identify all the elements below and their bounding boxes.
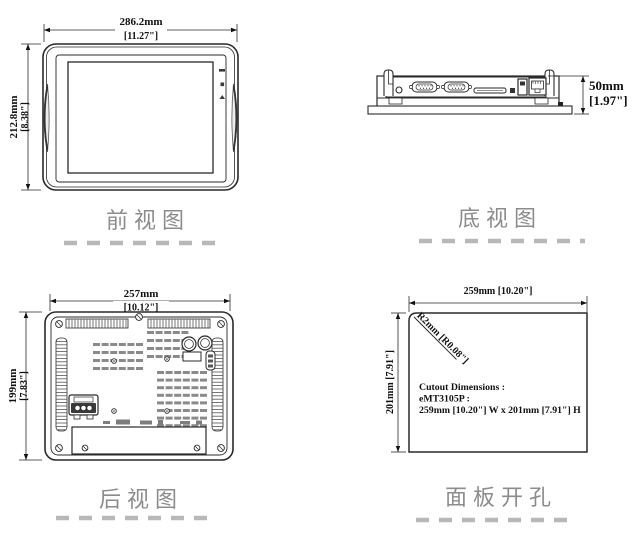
cutout-height-text: 201mm [7.91"] xyxy=(385,350,396,414)
power-terminal-icon xyxy=(69,395,98,419)
left-mount-clip-icon xyxy=(384,70,393,96)
ethernet-port-icon xyxy=(529,78,546,95)
drawing-canvas: 286.2mm [11.27"] 212.8mm [8.38"] 前视图 xyxy=(0,0,640,550)
cutout-height-dimension: 201mm [7.91"] xyxy=(385,313,406,452)
serial-port-1-icon xyxy=(409,82,439,92)
dip-switch-icon xyxy=(510,88,515,93)
cutout-view-title: 面板开孔 xyxy=(445,486,557,511)
front-view-title: 前视图 xyxy=(106,209,190,234)
front-screen xyxy=(68,62,213,173)
sd-card-slot-icon xyxy=(474,88,506,93)
rear-view: 257mm [10.12"] 199mm [7.83"] 后视图 xyxy=(5,288,233,518)
rear-width-in: [10.12"] xyxy=(124,303,159,314)
cutout-width-text: 259mm [10.20"] xyxy=(464,286,533,297)
bottom-view-title: 底视图 xyxy=(458,207,542,232)
rear-connector-shelf xyxy=(72,427,206,454)
rear-width-dimension: 257mm [10.12"] xyxy=(50,288,230,314)
panel-cutout-view: 259mm [10.20"] 201mm [7.91"] R2mm [R0.08… xyxy=(385,286,587,520)
power-jack-icon xyxy=(396,87,402,93)
front-height-dimension: 212.8mm [8.38"] xyxy=(6,44,41,190)
rear-height-dimension: 199mm [7.83"] xyxy=(5,312,42,460)
mounting-panel-plate xyxy=(368,106,572,114)
bottom-depth-in: [1.97"] xyxy=(589,93,628,108)
front-height-in: [8.38"] xyxy=(20,102,31,132)
cutout-note-line1: Cutout Dimensions : xyxy=(419,382,505,393)
rear-width-mm: 257mm xyxy=(124,288,159,300)
rear-view-title: 后视图 xyxy=(99,488,183,513)
serial-port-2-icon xyxy=(441,82,471,92)
cutout-width-dimension: 259mm [10.20"] xyxy=(409,286,587,312)
front-view: 286.2mm [11.27"] 212.8mm [8.38"] 前视图 xyxy=(6,16,238,243)
front-width-mm: 286.2mm xyxy=(119,16,162,28)
usb-port-icon xyxy=(518,79,527,95)
bottom-view: 50mm [1.97"] 底视图 xyxy=(368,70,628,241)
front-width-dimension: 286.2mm [11.27"] xyxy=(44,16,237,42)
front-width-in: [11.27"] xyxy=(124,31,158,42)
front-height-mm: 212.8mm xyxy=(8,95,20,138)
bottom-depth-mm: 50mm xyxy=(589,78,624,93)
rear-height-mm: 199mm xyxy=(7,369,19,404)
rear-height-in: [7.83"] xyxy=(19,371,30,401)
dimension-drawing-sheet: 286.2mm [11.27"] 212.8mm [8.38"] 前视图 xyxy=(0,0,640,550)
cutout-note-line2: eMT3105P : xyxy=(419,394,470,405)
cutout-note-line3: 259mm [10.20"] W x 201mm [7.91"] H xyxy=(419,405,581,416)
